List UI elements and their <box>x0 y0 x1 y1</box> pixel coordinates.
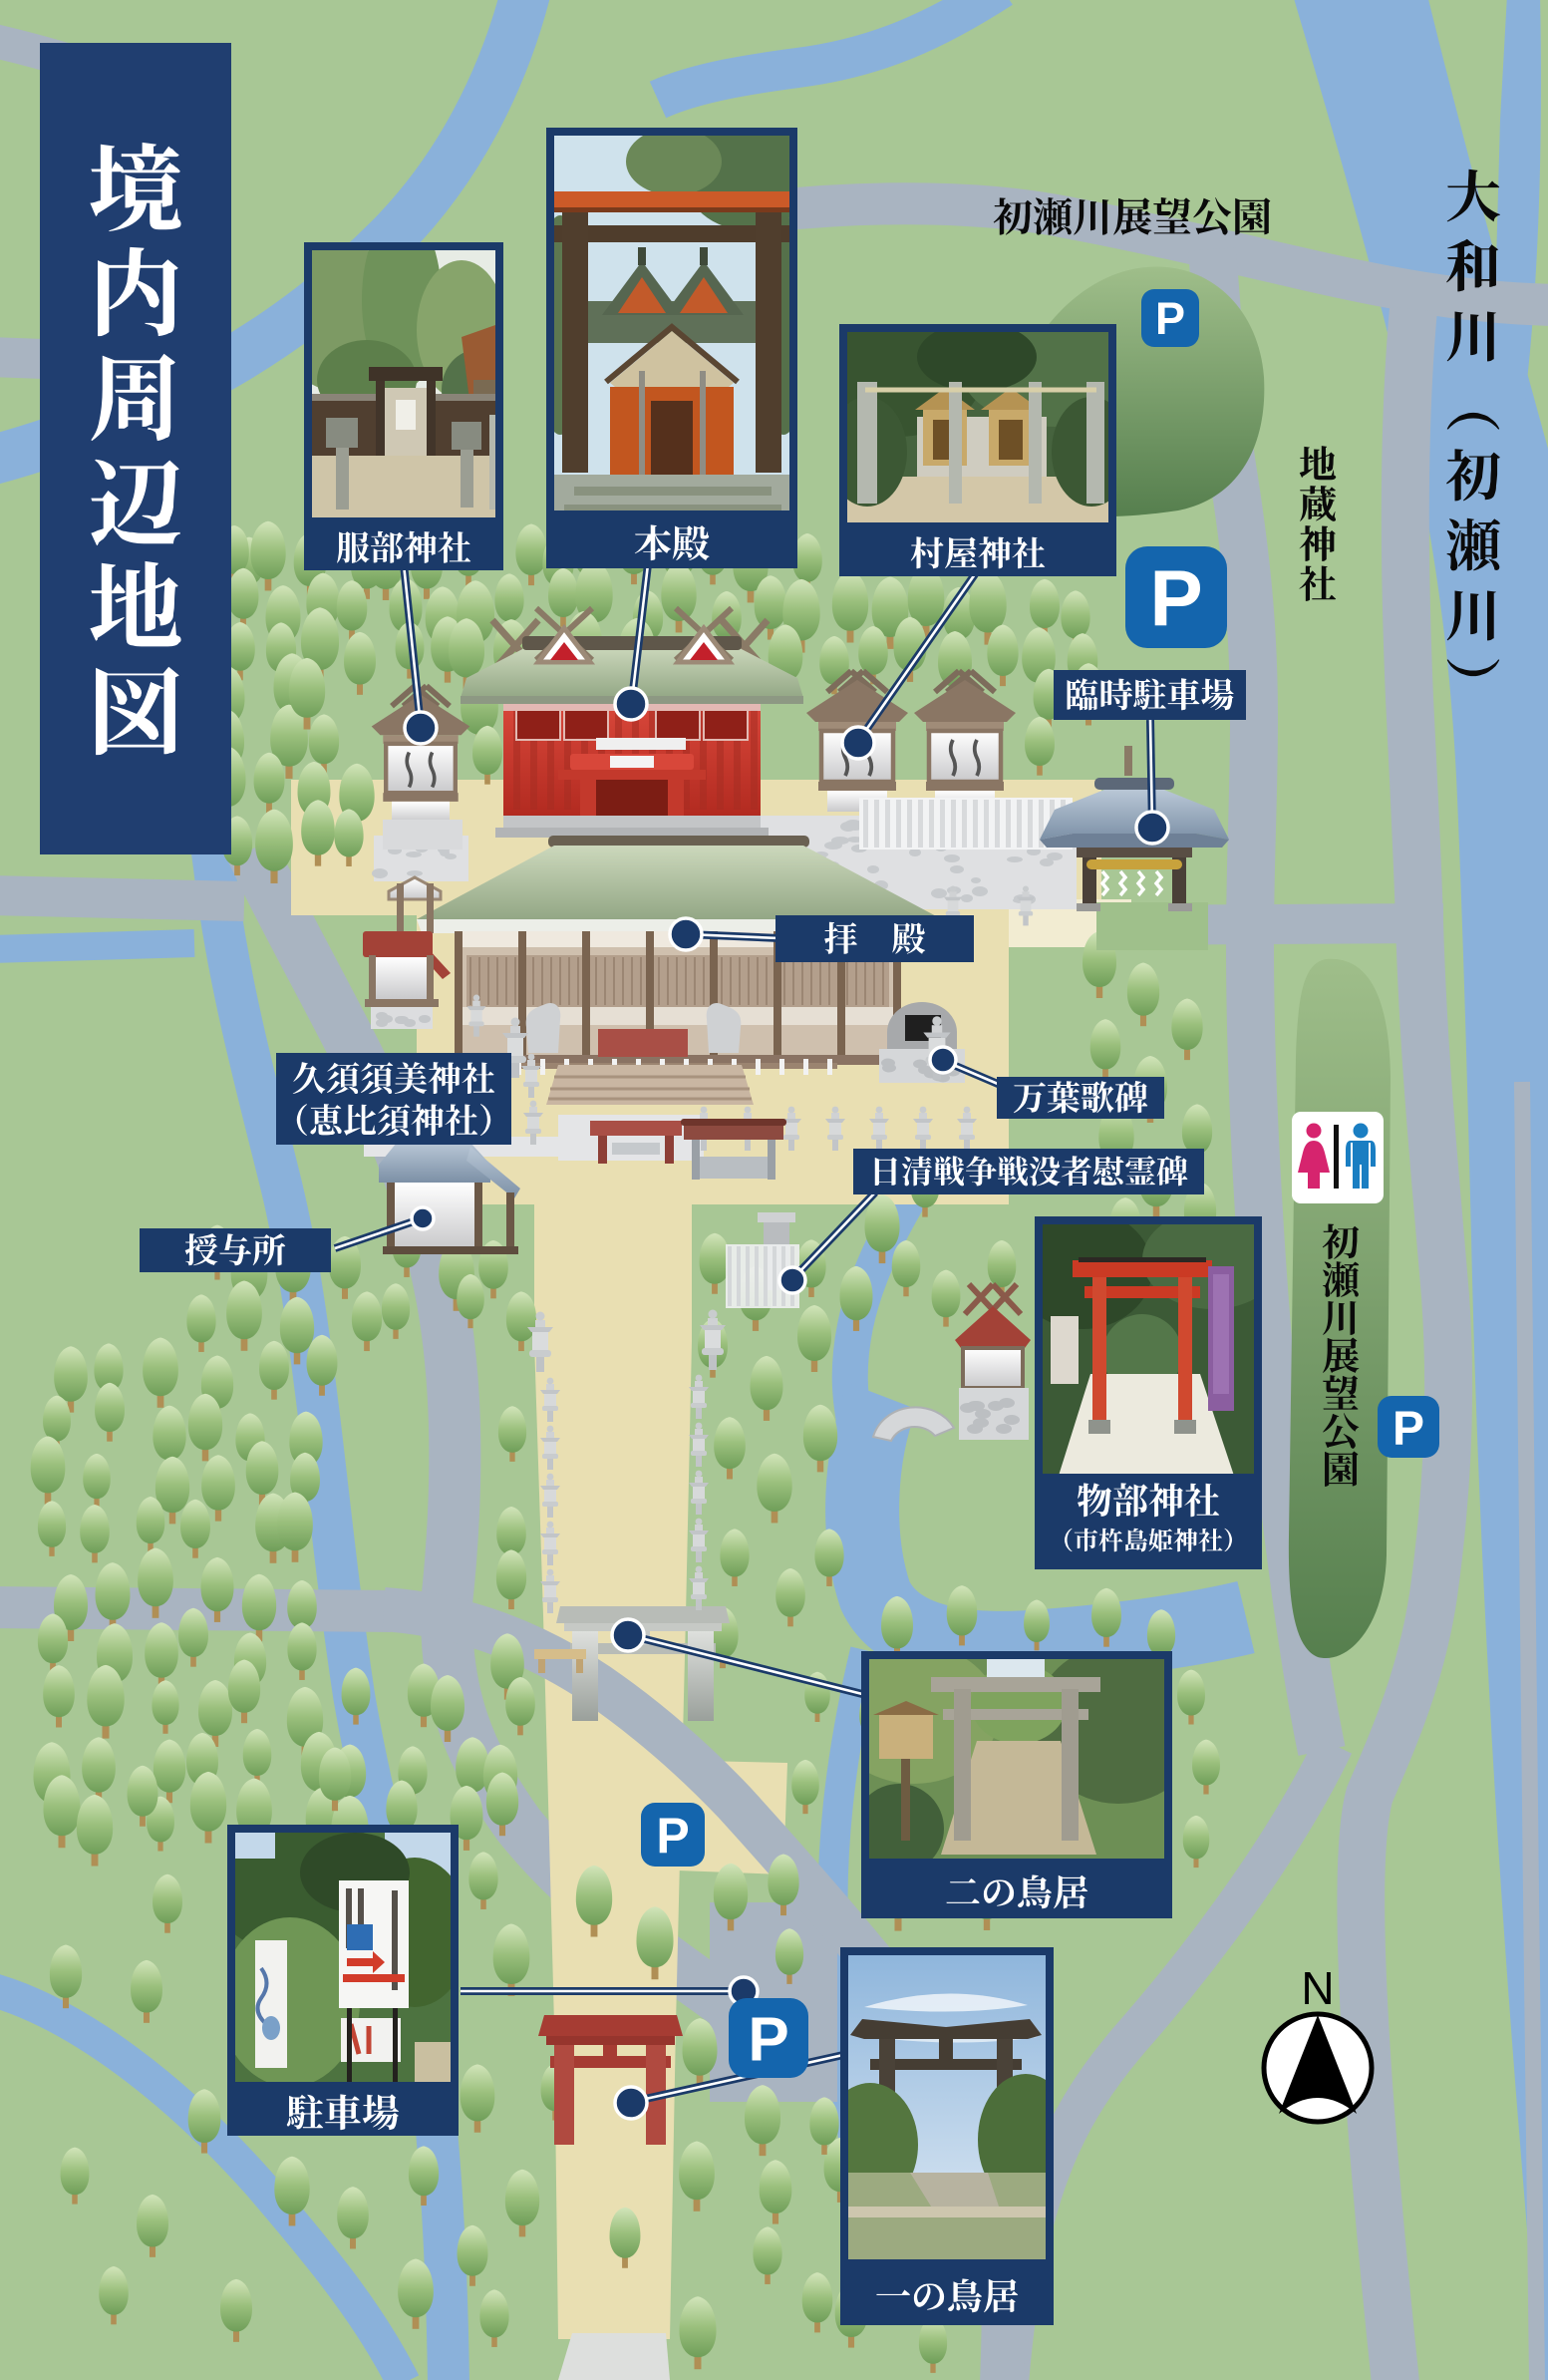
svg-text:P: P <box>748 2005 788 2074</box>
svg-text:P: P <box>1155 293 1185 344</box>
svg-text:P: P <box>1393 1402 1424 1455</box>
svg-text:P: P <box>656 1808 689 1864</box>
svg-text:N: N <box>1301 1962 1334 2014</box>
svg-text:P: P <box>1149 554 1202 643</box>
